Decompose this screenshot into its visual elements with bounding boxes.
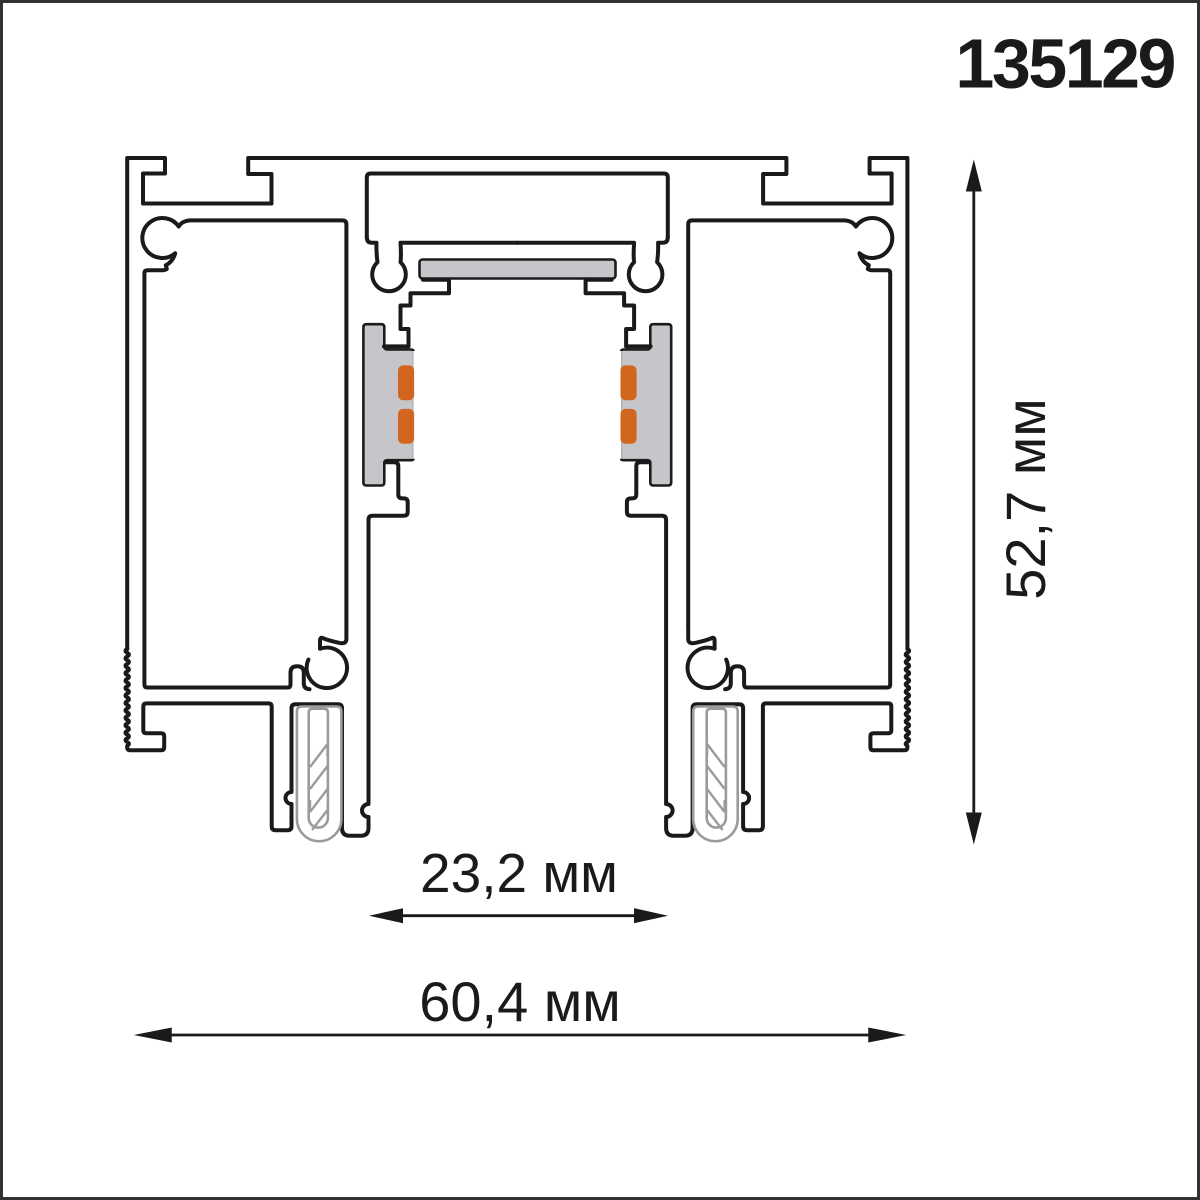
svg-text:23,2 мм: 23,2 мм [420, 842, 618, 904]
svg-text:60,4 мм: 60,4 мм [419, 970, 621, 1033]
svg-text:52,7 мм: 52,7 мм [994, 398, 1057, 600]
svg-text:135129: 135129 [955, 25, 1174, 103]
